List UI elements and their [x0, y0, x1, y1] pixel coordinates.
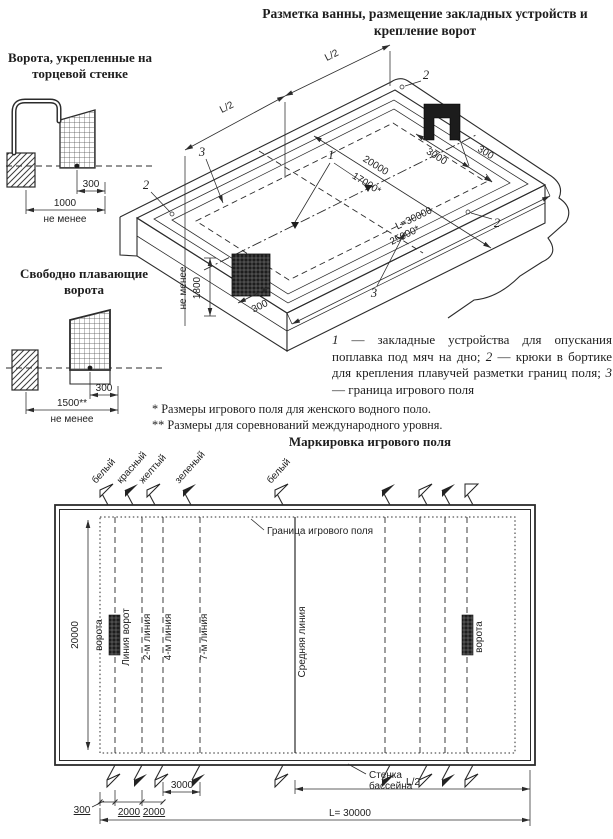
flag-label-green: зеленый [173, 449, 208, 486]
flag-bottom-icon [465, 765, 478, 787]
svg-text:2: 2 [423, 68, 429, 82]
near-wall-faces [137, 185, 545, 351]
dim-goal: 3000 300 [416, 134, 496, 182]
svg-text:300: 300 [74, 805, 91, 816]
svg-text:2000: 2000 [118, 807, 141, 818]
svg-text:3: 3 [370, 286, 377, 300]
svg-text:1800: 1800 [192, 276, 203, 299]
svg-text:ворота: ворота [474, 621, 485, 653]
flag-right-4-icon [465, 484, 478, 505]
svg-text:2: 2 [494, 216, 500, 230]
field-marking-title: Маркировка игрового поля [160, 434, 580, 450]
dim-1500: 1500** не менее [26, 392, 118, 425]
flag-label-white-mid: белый [264, 456, 293, 486]
legend-text: 1 — закладные устройства для опускания п… [332, 332, 612, 398]
goal-net [60, 110, 95, 168]
isometric-pool-drawing: L/2 L/2 20000 17000* 3000 300 L=30000 25… [118, 8, 613, 348]
svg-text:Граница игрового поля: Граница игрового поля [267, 526, 373, 537]
flags-top: белый красный желтый зеленый белый [89, 449, 478, 505]
flag-white-icon [100, 484, 113, 505]
goal-right [462, 615, 473, 655]
dim-300: 300 [90, 372, 118, 399]
svg-text:300: 300 [96, 383, 113, 394]
svg-text:17000*: 17000* [350, 171, 383, 197]
flag-bottom-icon [107, 765, 120, 787]
pool-wall-section [7, 153, 35, 187]
flag-right-2-icon [419, 484, 432, 505]
deck-left-step [120, 217, 137, 256]
pool-wall-label: Стенка бассейна [348, 764, 413, 792]
svg-text:Средняя линия: Средняя линия [297, 606, 308, 677]
svg-text:3000: 3000 [424, 146, 449, 167]
callout-hooks: 2 2 2 [143, 68, 500, 230]
pool-wall-section [12, 350, 38, 390]
flag-bottom-icon [275, 765, 288, 787]
svg-text:2000: 2000 [143, 807, 166, 818]
svg-text:L= 30000: L= 30000 [329, 808, 371, 819]
flag-green-icon [183, 484, 196, 505]
svg-text:L/2: L/2 [323, 48, 341, 64]
svg-text:300: 300 [83, 179, 100, 190]
svg-text:300: 300 [475, 144, 495, 162]
svg-text:1500**: 1500** [57, 398, 87, 409]
flag-white-mid-icon [275, 484, 288, 505]
footnote-international: ** Размеры для соревнований международно… [152, 418, 582, 434]
goal-anchor-point [75, 164, 80, 169]
dim-1000: 1000 не менее [26, 190, 105, 225]
flag-bottom-icon [192, 765, 205, 787]
flag-label-white: белый [89, 456, 118, 486]
field-marking-drawing: 20000 ворота Линия ворот 2-м линия 4-м л… [30, 452, 613, 839]
svg-text:не менее: не менее [51, 414, 94, 425]
svg-text:3000: 3000 [171, 780, 194, 791]
svg-text:3: 3 [198, 145, 205, 159]
callout-float-devices: 1 [291, 148, 372, 229]
flag-yellow-icon [147, 484, 160, 505]
svg-text:не менее: не менее [44, 214, 87, 225]
svg-text:1000: 1000 [54, 198, 77, 209]
svg-text:Линия ворот: Линия ворот [121, 608, 132, 666]
svg-text:Стенка: Стенка [369, 770, 402, 781]
svg-text:2: 2 [143, 178, 149, 192]
flag-bottom-icon [134, 765, 147, 787]
goal-anchor-point [88, 366, 93, 371]
flag-bottom-icon [419, 765, 432, 787]
svg-text:не менее: не менее [178, 266, 189, 309]
boundary-label: Граница игрового поля [251, 519, 373, 537]
footnotes: * Размеры игрового поля для женского вод… [152, 402, 582, 433]
line-labels: ворота Линия ворот 2-м линия 4-м линия 7… [94, 606, 485, 677]
goal-frame-tube [14, 101, 59, 153]
flag-right-3-icon [442, 484, 455, 505]
flag-bottom-icon [442, 765, 455, 787]
svg-text:L/2: L/2 [406, 777, 420, 788]
flag-red-icon [125, 484, 138, 505]
goal-left [109, 615, 120, 655]
svg-text:2-м линия: 2-м линия [142, 614, 153, 661]
svg-text:7-м линия: 7-м линия [199, 614, 210, 661]
dim-300: 300 [77, 170, 105, 194]
footnote-women: * Размеры игрового поля для женского вод… [152, 402, 582, 418]
flag-right-1-icon [382, 484, 395, 505]
legend-item-3-text: — граница игрового поля [332, 382, 474, 397]
legend-item-3-num: 3 [606, 365, 613, 380]
svg-text:ворота: ворота [94, 619, 105, 651]
svg-text:1: 1 [328, 148, 334, 162]
svg-text:4-м линия: 4-м линия [163, 614, 174, 661]
scanned-page: Разметка ванны, размещение закладных уст… [0, 0, 613, 839]
svg-text:L/2: L/2 [218, 100, 236, 116]
flag-bottom-icon [155, 765, 168, 787]
svg-text:20000: 20000 [70, 621, 81, 649]
goal-right [424, 104, 460, 140]
dim-width: 20000 [70, 520, 88, 750]
